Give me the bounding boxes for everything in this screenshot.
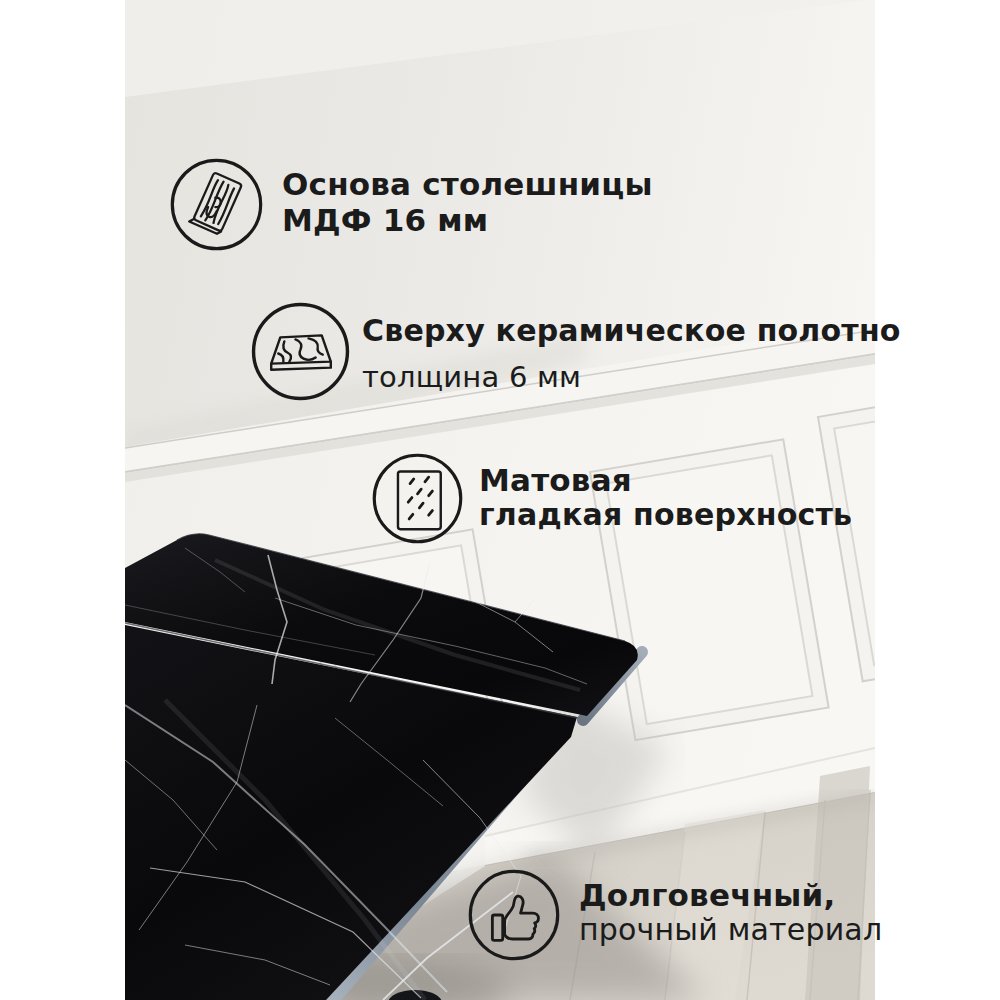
- thumbs-up-icon: [467, 868, 561, 962]
- feature-ceramic-text: Сверху керамическое полотно толщина 6 мм: [362, 313, 901, 395]
- matte-surface-icon: [371, 452, 464, 545]
- feature-durable-line2: прочный материал: [579, 913, 882, 947]
- mdf-board-icon: [169, 157, 264, 252]
- feature-ceramic-line1: Сверху керамическое полотно: [362, 313, 901, 349]
- feature-matte-line1: Матовая: [479, 462, 852, 498]
- feature-durable-text: Долговечный, прочный материал: [579, 877, 882, 947]
- ceramic-slab-icon: [250, 301, 351, 402]
- feature-matte-line2: гладкая поверхность: [479, 498, 852, 532]
- feature-matte-text: Матовая гладкая поверхность: [479, 462, 852, 532]
- product-infographic: Основа столешницы МДФ 16 мм Сверху керам…: [0, 0, 1000, 1000]
- feature-ceramic-line2: толщина 6 мм: [362, 359, 901, 395]
- feature-mdf-line2: МДФ 16 мм: [282, 202, 653, 238]
- feature-mdf-text: Основа столешницы МДФ 16 мм: [282, 166, 653, 238]
- feature-mdf-line1: Основа столешницы: [282, 166, 653, 202]
- feature-durable-line1: Долговечный,: [579, 877, 882, 913]
